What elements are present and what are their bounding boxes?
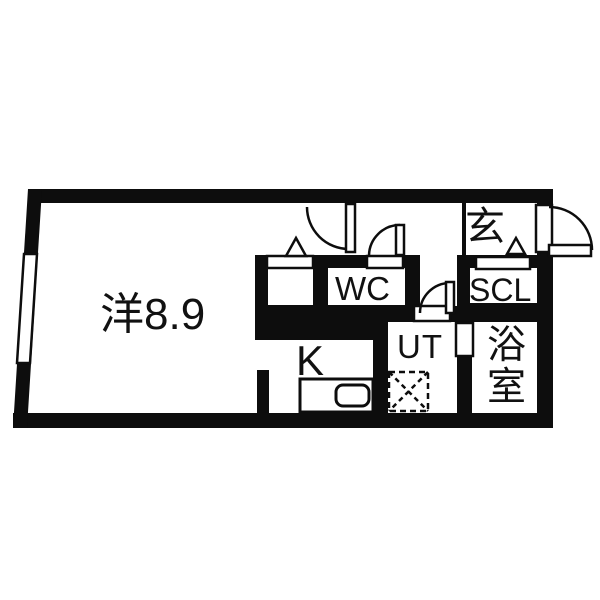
room-door-arc — [307, 207, 349, 249]
kitchen-sink — [336, 385, 369, 406]
shoe-closet-label: SCL — [469, 274, 531, 306]
entrance-door-arc — [549, 207, 592, 250]
toilet-label: WC — [335, 272, 390, 305]
window — [17, 254, 37, 363]
kitchen-label: K — [296, 340, 324, 382]
wc-doorway — [367, 256, 403, 268]
utility-door-leaf — [446, 282, 454, 313]
living-room-label: 洋8.9 — [100, 293, 205, 337]
outer-wall-bottom — [13, 413, 553, 428]
utility-label: UT — [397, 330, 443, 363]
bathroom-label: 浴室 — [486, 325, 527, 409]
wall-under-wc — [255, 305, 420, 322]
closet-opening — [267, 256, 313, 268]
outer-wall-top — [28, 189, 553, 203]
room-door-leaf — [346, 204, 355, 252]
bathroom-door — [456, 323, 473, 356]
wall-kitchen-stub — [257, 370, 269, 413]
step-triangle-entrance — [507, 238, 525, 254]
scl-opening — [476, 257, 530, 269]
wall-bathroom-left — [457, 303, 472, 413]
entrance-door-leaf — [549, 245, 591, 256]
wall-closet-wc-divider — [313, 268, 328, 308]
entrance-label: 玄 — [465, 207, 505, 247]
floor-plan: 洋8.9 WC K UT 玄 SCL 浴室 — [0, 0, 600, 600]
wall-kitchen-utility-divider — [373, 322, 388, 413]
wc-door-leaf — [396, 225, 404, 255]
step-triangle-room — [286, 238, 306, 256]
